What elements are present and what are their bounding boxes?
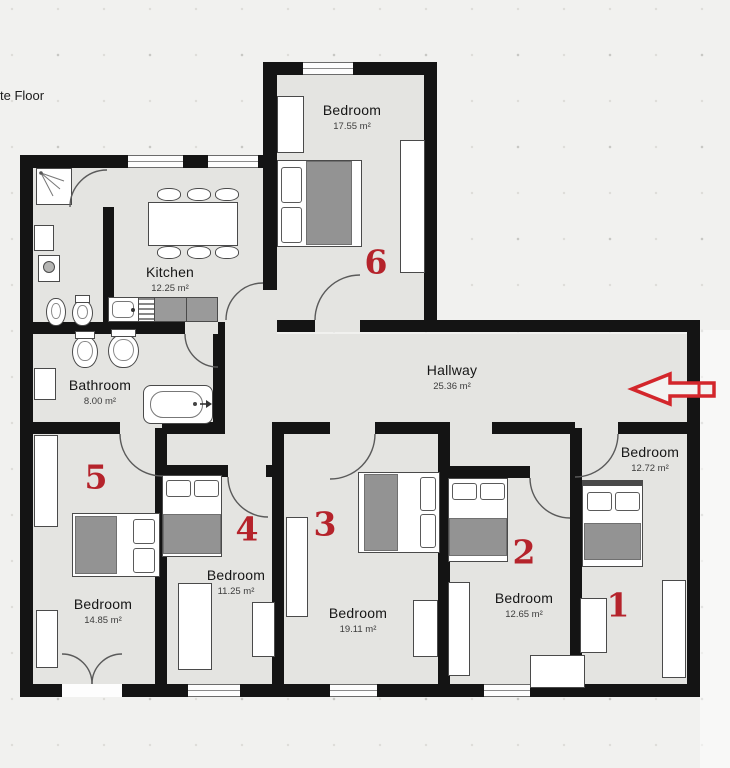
countertop: [186, 297, 218, 322]
shower: [36, 168, 72, 205]
door-opening: [330, 422, 375, 434]
cabinet: [36, 610, 58, 668]
pillow: [166, 480, 191, 497]
wall: [450, 466, 530, 478]
pillow: [480, 483, 505, 500]
cabinet: [252, 602, 275, 657]
wardrobe: [277, 96, 304, 153]
pillow: [420, 514, 436, 548]
pillow: [281, 167, 302, 203]
wardrobe: [448, 582, 470, 676]
toilet: [108, 334, 139, 368]
floor-plan: te Floor Bedroom 17.55 m² Kitchen 12.25 …: [0, 0, 730, 768]
window: [303, 62, 353, 75]
blanket: [364, 474, 398, 551]
door-opening: [228, 465, 268, 477]
chair: [187, 188, 211, 201]
blanket: [75, 516, 117, 574]
corner-label: te Floor: [0, 88, 44, 103]
wall: [687, 320, 700, 697]
cabinet: [580, 598, 607, 653]
wardrobe: [34, 435, 58, 527]
wall: [277, 320, 315, 332]
wall: [20, 422, 120, 434]
wall: [437, 320, 700, 332]
wall: [492, 422, 575, 434]
faucet: [131, 308, 135, 312]
cabinet: [413, 600, 438, 657]
wardrobe: [400, 140, 425, 273]
dining-table: [148, 202, 238, 246]
wardrobe: [662, 580, 686, 678]
wall: [218, 322, 225, 334]
bathtub-drain: [193, 402, 197, 406]
pillow: [133, 519, 155, 544]
chair: [157, 188, 181, 201]
window: [484, 684, 530, 697]
pillow: [420, 477, 436, 511]
toilet: [72, 336, 98, 368]
wall: [424, 62, 437, 332]
chair: [157, 246, 181, 259]
door-opening: [103, 170, 114, 207]
chair: [215, 246, 239, 259]
background-texture: [700, 330, 730, 768]
french-door-opening: [62, 684, 122, 697]
wardrobe: [178, 583, 212, 670]
toilet: [72, 300, 93, 326]
radiator: [34, 225, 54, 251]
wall: [618, 422, 687, 434]
wall: [360, 320, 424, 332]
blanket: [306, 161, 352, 245]
washing-machine-drum: [43, 261, 55, 273]
wall: [263, 62, 277, 168]
blanket: [449, 518, 507, 556]
pillow: [452, 483, 477, 500]
window: [188, 684, 240, 697]
door-opening: [315, 320, 360, 332]
pillow: [133, 548, 155, 573]
room-hallway-floor: [225, 334, 687, 422]
dishwasher: [138, 297, 155, 322]
window: [208, 155, 258, 168]
countertop: [154, 297, 187, 322]
wardrobe: [286, 517, 308, 617]
chair: [215, 188, 239, 201]
wall: [20, 322, 185, 334]
pillow: [281, 207, 302, 243]
blanket: [584, 523, 641, 560]
window: [128, 155, 183, 168]
window: [330, 684, 377, 697]
radiator: [34, 368, 56, 400]
chair: [187, 246, 211, 259]
pillow: [194, 480, 219, 497]
wall: [277, 422, 330, 434]
pillow: [615, 492, 640, 511]
wall: [213, 334, 225, 422]
door-opening: [185, 322, 218, 334]
blanket: [163, 514, 221, 554]
wall: [263, 168, 277, 290]
cabinet: [530, 655, 585, 688]
door-opening: [530, 466, 570, 478]
bidet: [46, 298, 66, 326]
pillow: [587, 492, 612, 511]
